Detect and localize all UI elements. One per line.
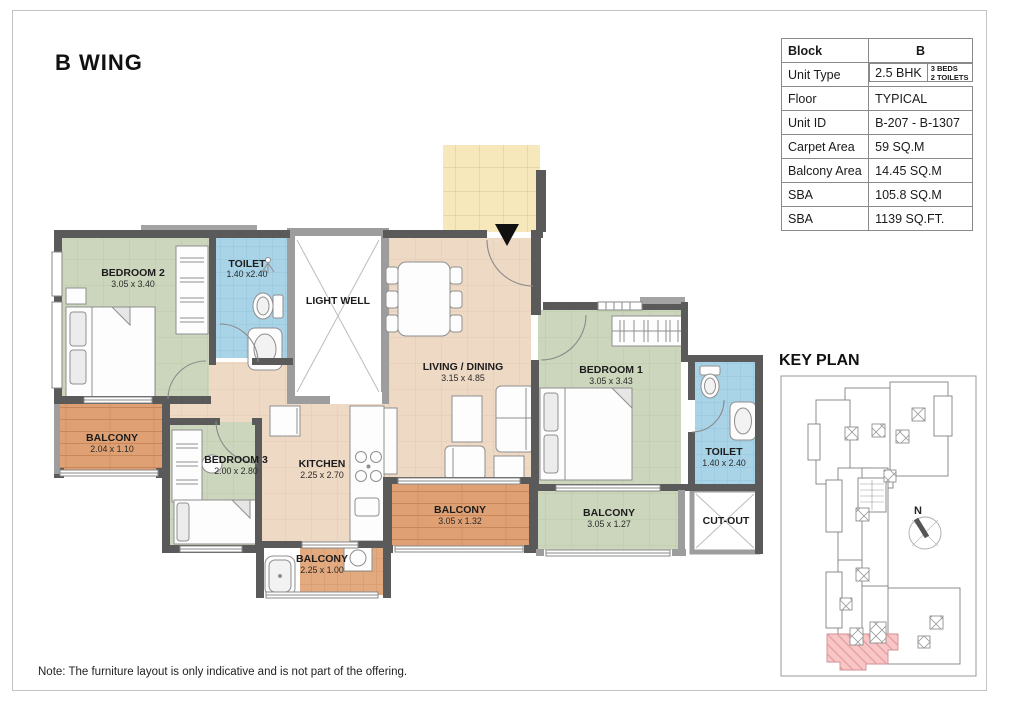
page: B WING [0, 0, 1010, 717]
key-plan: N [0, 0, 1010, 717]
disclaimer-note: Note: The furniture layout is only indic… [38, 666, 407, 678]
compass-north-label: N [914, 505, 922, 517]
